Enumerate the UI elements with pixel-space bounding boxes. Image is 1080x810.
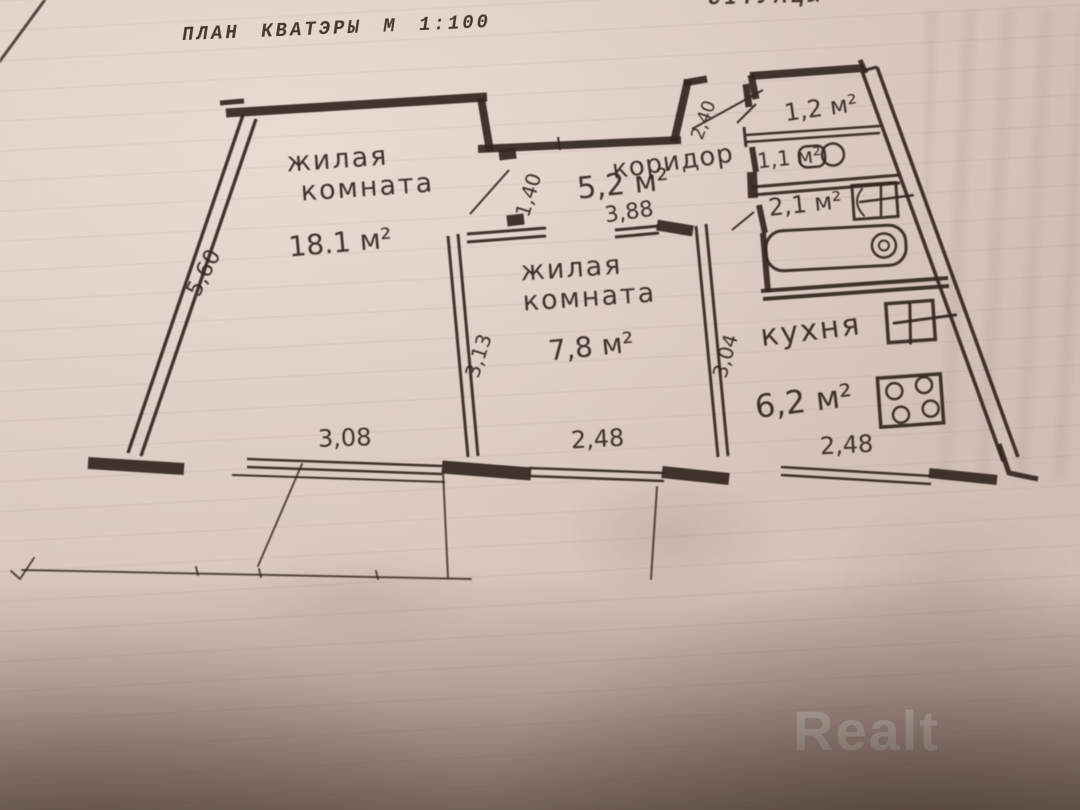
bathtub-body bbox=[765, 224, 907, 271]
window-living2-line2 bbox=[529, 476, 664, 481]
living2-top-wall-right-b bbox=[615, 233, 659, 237]
living1-door-swing bbox=[470, 170, 509, 214]
floor-plan-drawing: жилая комната 18.1 м² жилая комната 7,8 … bbox=[0, 0, 1080, 810]
bottom-center-jamb bbox=[442, 467, 531, 474]
living1-area: 18.1 м² bbox=[287, 222, 393, 264]
bath-left-wall bbox=[759, 205, 765, 233]
niche-right-wall bbox=[674, 80, 688, 142]
bath-sink-tap-h bbox=[860, 195, 913, 202]
balcony-right-line bbox=[443, 471, 448, 578]
partition-living2-kitchen-a bbox=[696, 226, 718, 457]
wc-area: 1,1 м² bbox=[756, 143, 822, 174]
closet-left-wall bbox=[746, 84, 749, 107]
stove-burner-4 bbox=[922, 400, 939, 417]
dim-entrance: 2,40 bbox=[687, 98, 720, 143]
closet-bottom-tee bbox=[744, 127, 746, 147]
realt-watermark: Realt bbox=[793, 698, 940, 763]
partition-living1-living2-a bbox=[448, 236, 468, 457]
closet-area: 1,2 м² bbox=[783, 89, 860, 127]
wall-top-closet bbox=[750, 68, 864, 76]
bathtub-icon bbox=[765, 224, 907, 271]
niche-left-wall bbox=[481, 98, 490, 151]
living2-top-wall-right-a bbox=[615, 226, 659, 230]
photographed-floor-plan-document: ПЛАН КВАТЭРЫ М 1:100 СІТУАЦЫ bbox=[0, 0, 1080, 810]
bath-door-swing bbox=[732, 212, 754, 230]
stove-burner-2 bbox=[915, 377, 932, 394]
balcony-side-line bbox=[258, 464, 302, 566]
wc-bottom-tee bbox=[752, 172, 753, 198]
living2-area: 7,8 м² bbox=[547, 326, 636, 368]
dim-living2-window: 2,48 bbox=[570, 424, 625, 455]
kitchen-area: 6,2 м² bbox=[753, 376, 855, 426]
kitchen-sink-tap-h bbox=[894, 315, 956, 323]
stove-burner-3 bbox=[892, 406, 909, 423]
window-kitchen-line2 bbox=[781, 475, 931, 484]
window-living1-line3 bbox=[232, 475, 445, 482]
stove-icon bbox=[877, 374, 943, 427]
bottom-left-flange bbox=[88, 463, 184, 469]
wall-top-left-room bbox=[226, 97, 487, 113]
window-living1-line2 bbox=[247, 467, 442, 474]
dim-living2-side: 3,13 bbox=[460, 331, 497, 381]
stove-burner-1 bbox=[886, 383, 903, 400]
balcony-front-line bbox=[22, 570, 471, 579]
living2-top-wall-left-a bbox=[467, 228, 546, 234]
kitchen-sink-tap-v bbox=[908, 304, 913, 343]
window-living1-line1 bbox=[247, 459, 442, 466]
wall-top-left-flange bbox=[220, 101, 244, 103]
living2-top-wall-left-b bbox=[467, 236, 546, 242]
window-kitchen-line1 bbox=[781, 467, 931, 476]
dim-living1-door: 1,40 bbox=[510, 170, 546, 220]
bottom-right-jamb bbox=[929, 473, 997, 480]
balcony-tick-2 bbox=[259, 569, 261, 577]
living2-top-jamb bbox=[657, 225, 693, 231]
balcony-end-check bbox=[11, 558, 34, 579]
niche-flange bbox=[684, 79, 707, 83]
dim-kitchen-window: 2,48 bbox=[819, 430, 874, 461]
bathtub-drain-inner bbox=[879, 240, 890, 251]
dim-living1-window: 3,08 bbox=[318, 423, 372, 453]
bottom-right-corner bbox=[999, 444, 1038, 479]
bathtub-drain-outer bbox=[871, 233, 896, 258]
niche-bottom-wall bbox=[478, 140, 681, 149]
bottom-jamb-living2-kitchen bbox=[662, 472, 729, 479]
page-corner-line bbox=[0, 0, 47, 65]
window-living2-line1 bbox=[529, 468, 664, 473]
living1-door-jamb-upper bbox=[499, 153, 516, 155]
dim-kitchen-side: 3,04 bbox=[708, 331, 743, 380]
dim-corridor-length: 3,88 bbox=[603, 197, 655, 229]
living1-door-jamb-lower bbox=[507, 219, 524, 221]
kitchen-name: кухня bbox=[758, 307, 863, 354]
site-vertical-line bbox=[651, 487, 657, 579]
